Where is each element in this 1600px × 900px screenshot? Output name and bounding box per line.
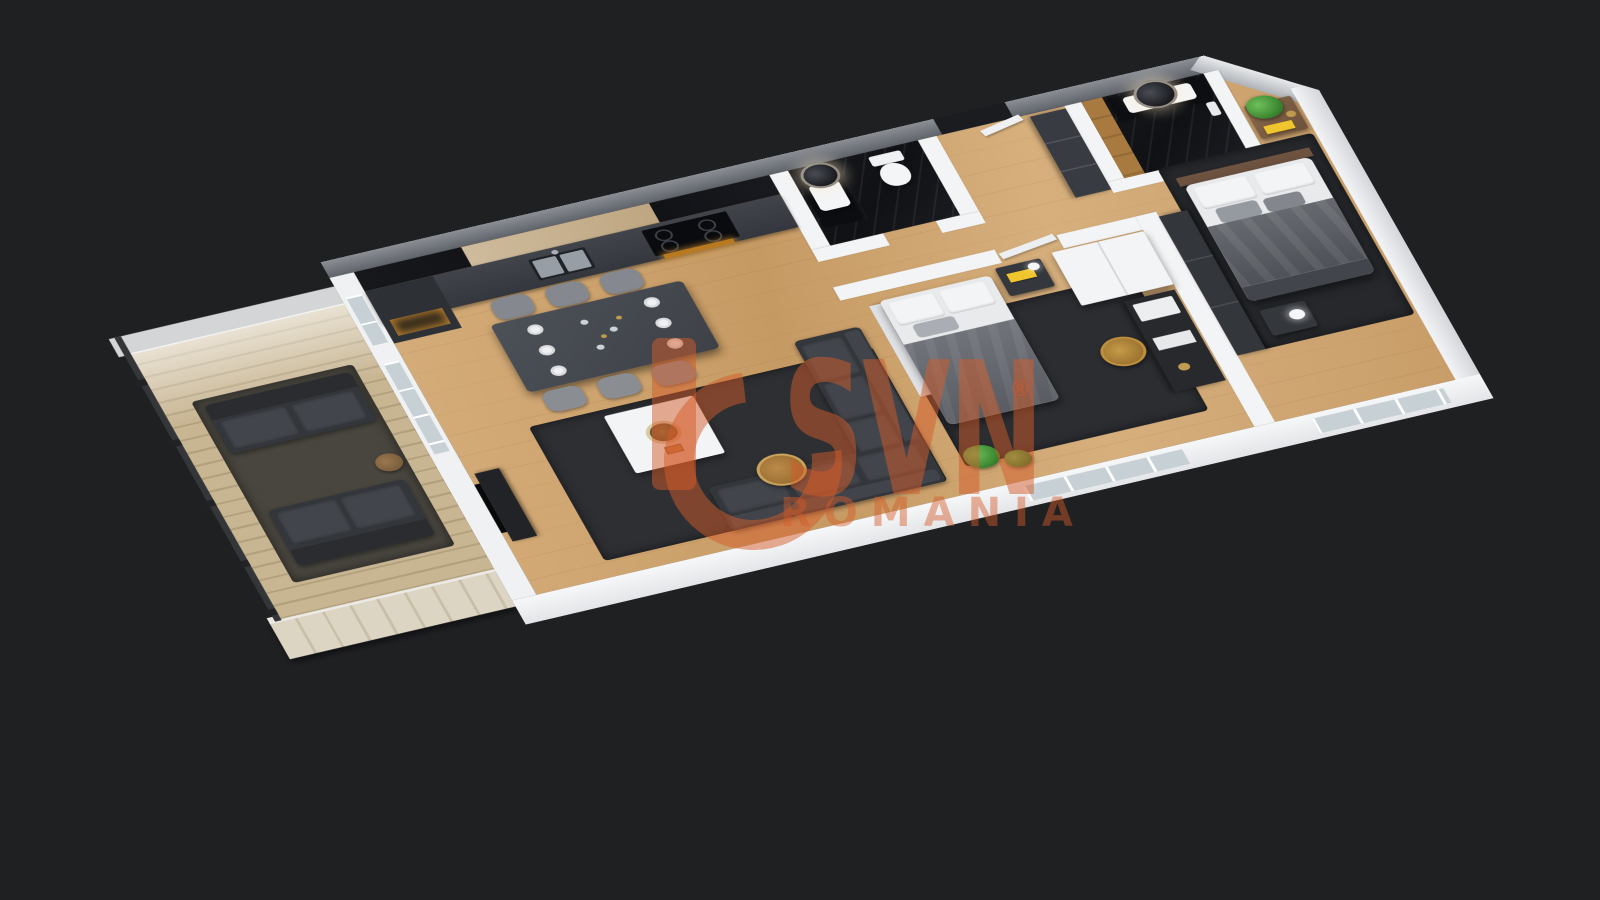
bed-pillow — [937, 281, 997, 315]
yellow-book — [1263, 120, 1296, 134]
wardrobe-divider — [1210, 301, 1239, 309]
glassware — [609, 326, 619, 333]
table-lamp — [1287, 308, 1308, 321]
place-setting-plate — [537, 344, 558, 357]
gold-candlestick — [600, 334, 608, 339]
printer — [1132, 296, 1181, 322]
decor-bowl — [646, 421, 682, 444]
gold-candlestick — [615, 315, 623, 320]
decor-book — [664, 443, 685, 454]
wardrobe-seam — [1097, 242, 1129, 296]
bed-pillow — [1252, 162, 1317, 196]
glassware — [579, 319, 589, 326]
place-setting-plate — [653, 316, 674, 329]
wardrobe-divider — [1184, 255, 1213, 263]
place-setting-plate — [525, 323, 546, 336]
desk-papers — [1152, 330, 1196, 351]
apartment — [321, 36, 1494, 625]
sink-bowl — [532, 256, 565, 278]
place-setting-plate — [665, 337, 686, 350]
sink-bowl — [559, 250, 592, 272]
closet-divider — [1045, 135, 1081, 145]
desk-gold-accessory — [1176, 362, 1191, 372]
place-setting-plate — [642, 296, 663, 309]
closet-divider — [1061, 163, 1097, 173]
gold-decor — [1285, 110, 1298, 118]
place-setting-plate — [548, 364, 569, 377]
glassware — [595, 344, 605, 351]
isometric-scene — [95, 29, 1535, 701]
floor-plan-render: SVN ® ROMANIA — [0, 0, 1600, 900]
